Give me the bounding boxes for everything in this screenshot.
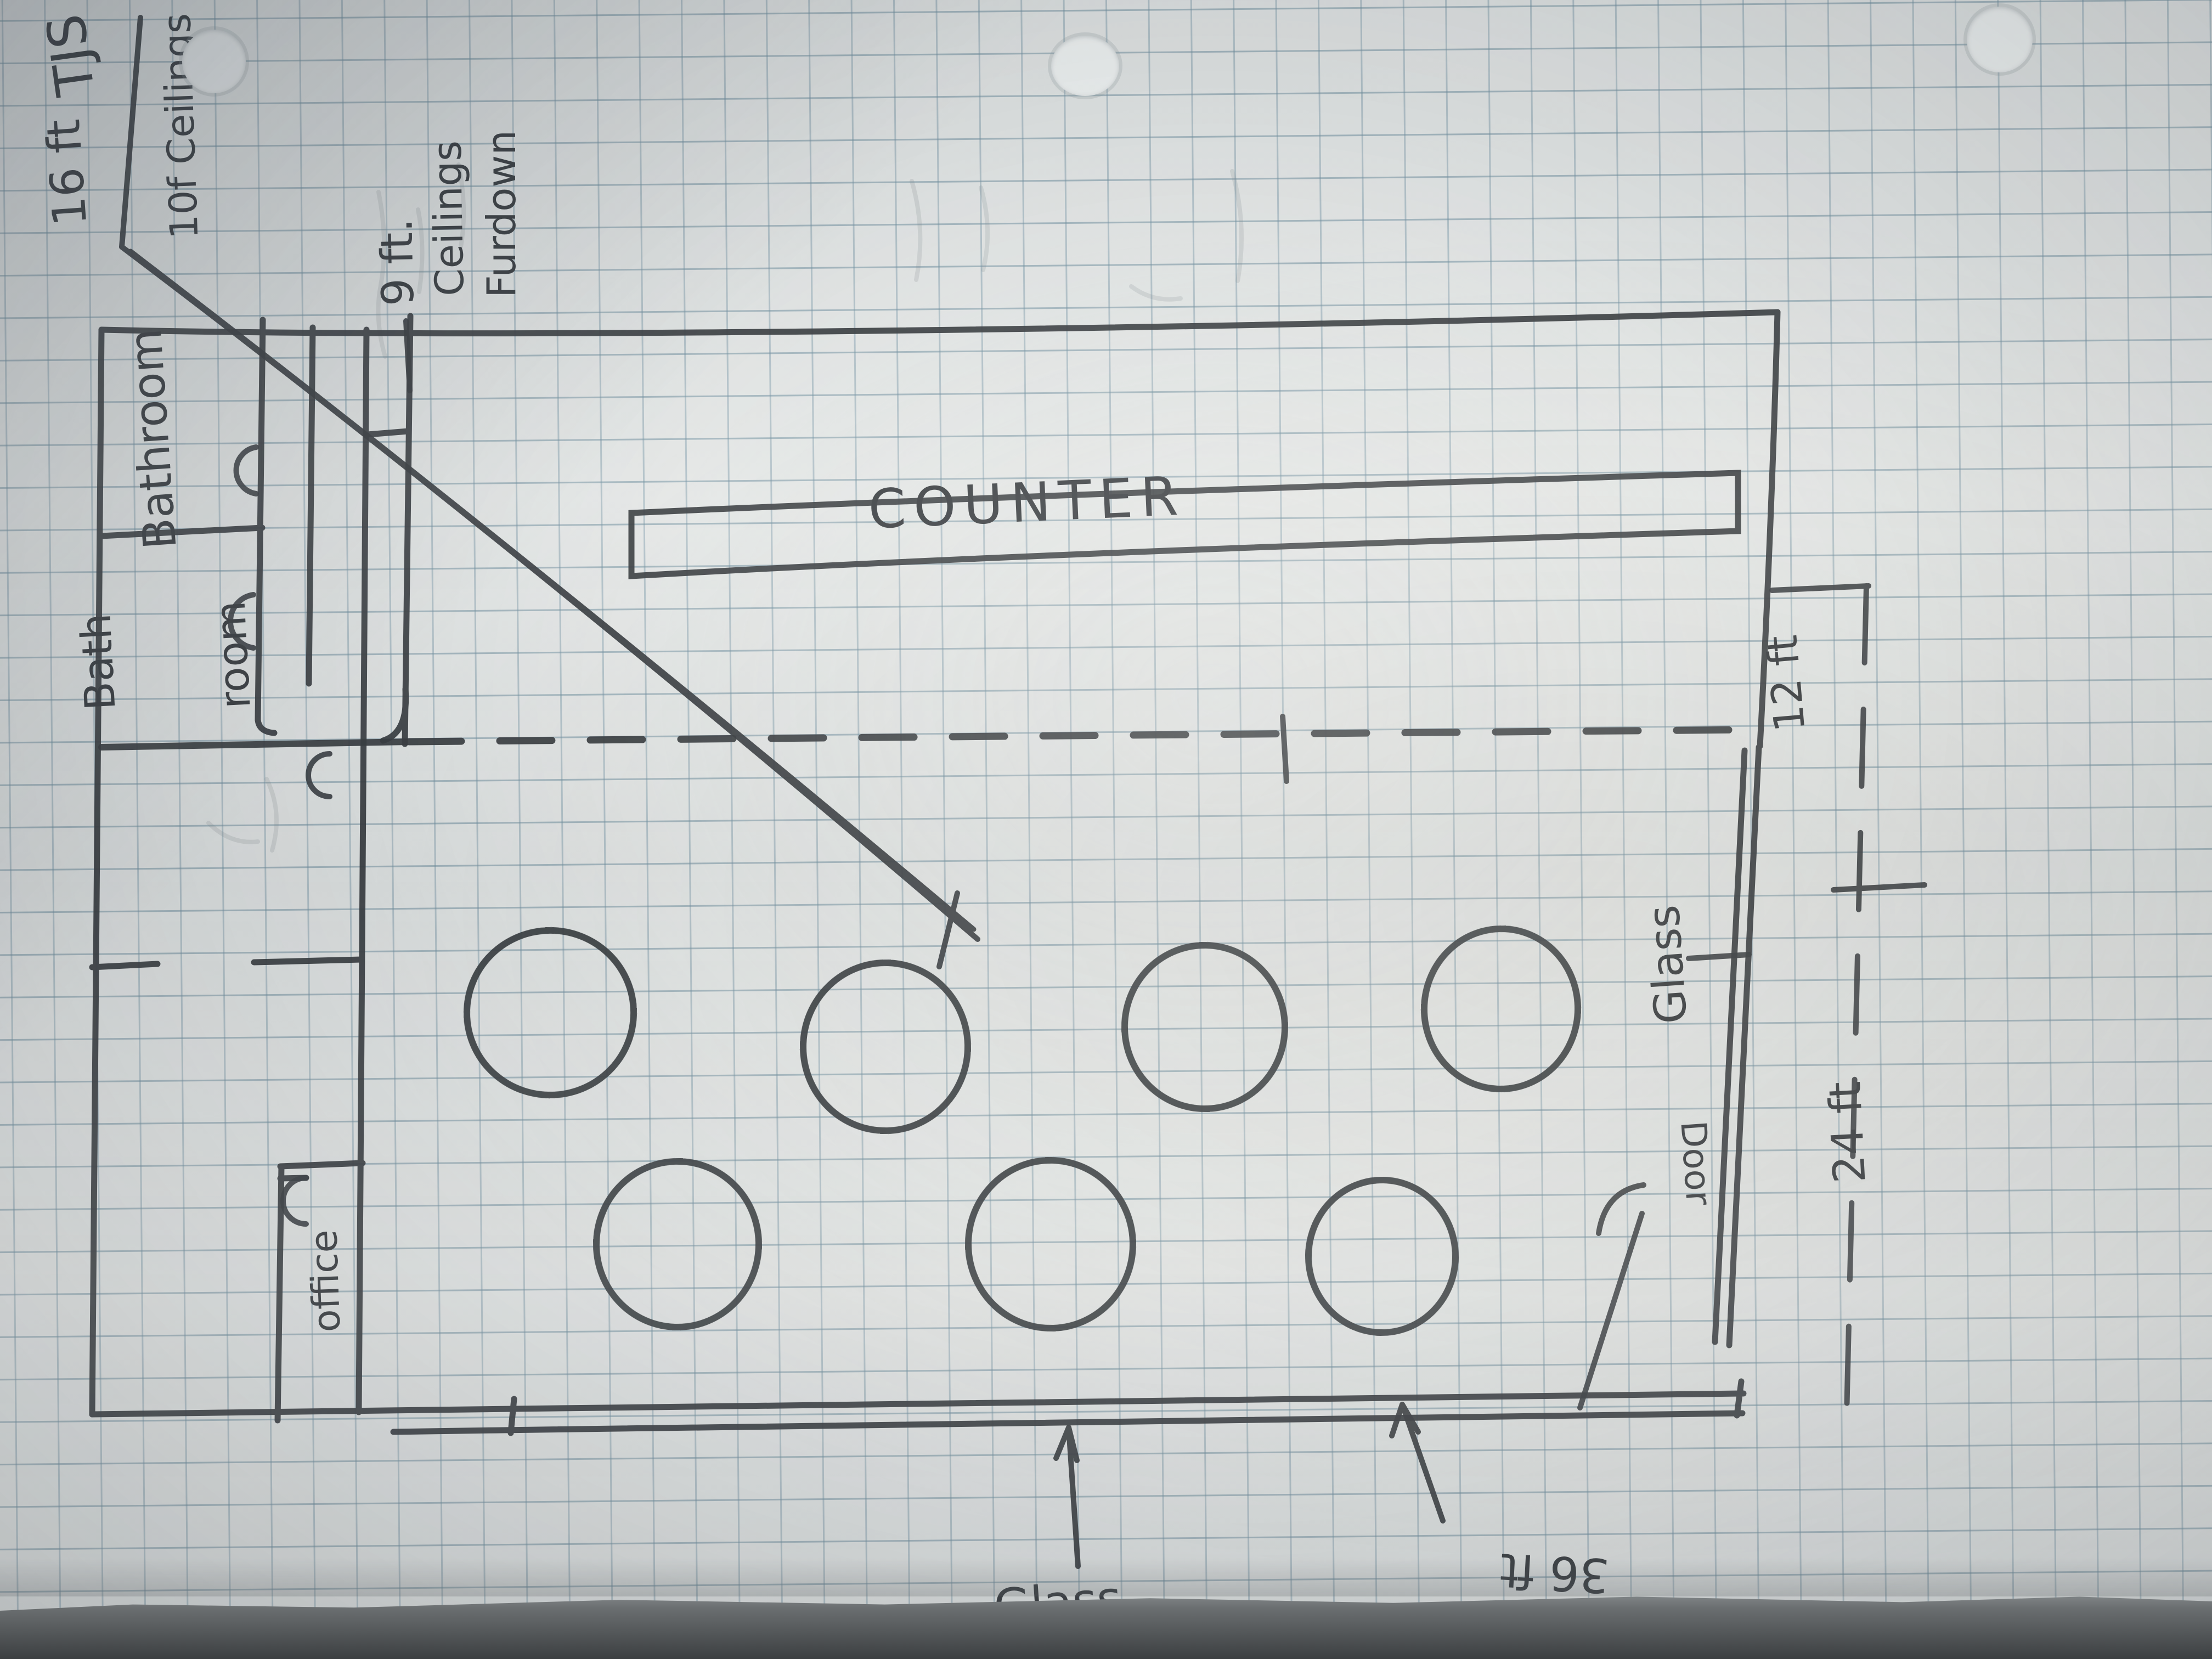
glass-storefront-outer <box>428 1393 1743 1410</box>
entry-door-leaf <box>1580 1214 1642 1408</box>
glass-right-tick <box>1689 955 1749 958</box>
label-office: office <box>304 1229 348 1333</box>
table-circle <box>1420 925 1582 1093</box>
paper-edge-shadow <box>0 1558 2212 1596</box>
glass-wall-right-outer <box>1729 747 1759 1345</box>
table-circle <box>800 960 970 1133</box>
dim-12ft-tick <box>1772 586 1869 590</box>
table-circle <box>594 1159 761 1330</box>
hall-wall-segment-2 <box>254 960 361 962</box>
wall-left <box>92 330 101 1414</box>
wall-bottom-left <box>92 1410 428 1414</box>
label-soffit-ceilings: Ceilings <box>426 140 472 297</box>
office-door-arc <box>283 1178 306 1224</box>
label-dim-24ft: 24 ft <box>1821 1080 1874 1184</box>
bathroom-fixture-hook <box>258 720 274 733</box>
label-bathroom-bottom-line2: room <box>208 600 258 710</box>
dim-line-dashed <box>1846 586 1866 1438</box>
hall-wall-segment-1 <box>92 964 157 967</box>
office-wall-top <box>280 1163 363 1166</box>
chase-tick <box>368 431 408 435</box>
glass-front-arrow <box>1056 1427 1078 1566</box>
storefront-mullion-tick <box>511 1399 514 1433</box>
glass-wall-right-inner <box>1715 751 1745 1342</box>
soffit-leader-tick <box>406 321 410 391</box>
table-circle <box>966 1158 1136 1331</box>
label-16ft: 16 ft <box>38 118 95 228</box>
label-bathroom-bottom: Bath room <box>0 595 348 722</box>
bathroom1-door-arc <box>236 447 256 494</box>
leader-16ft-line <box>122 18 140 247</box>
hall-door-arc <box>308 754 330 797</box>
photo-of-floorplan-sketch: 16 ft TJS 10f Ceilings 9 ft. Ceilings Fu… <box>0 0 2212 1659</box>
label-soffit-9ft: 9 ft. <box>373 218 422 306</box>
label-dim-12ft: 12 ft <box>1759 634 1813 734</box>
wall-divider-main <box>359 330 366 1412</box>
label-tjs: TJS <box>37 11 105 99</box>
ceiling-line-tick <box>1283 716 1286 781</box>
label-door: Door <box>1673 1120 1717 1206</box>
table-circle <box>462 926 637 1099</box>
hole-punch <box>1967 7 2033 72</box>
floorplan-ink <box>0 0 2212 1659</box>
label-bathroom-bottom-line1: Bath <box>73 607 123 717</box>
hole-punch <box>182 30 246 93</box>
table-circle <box>1307 1179 1457 1334</box>
label-soffit-furdown: Furdown <box>481 130 523 298</box>
ceiling-line-dashed <box>409 730 1756 742</box>
dim-36ft-arrow <box>1392 1404 1443 1521</box>
wall-top <box>101 312 1778 334</box>
hole-punch <box>1051 36 1119 96</box>
label-glass-right: Glass <box>1640 904 1695 1025</box>
table-circle <box>1122 943 1288 1111</box>
label-counter: COUNTER <box>867 468 1187 540</box>
dim-mid-tick <box>1833 885 1925 890</box>
